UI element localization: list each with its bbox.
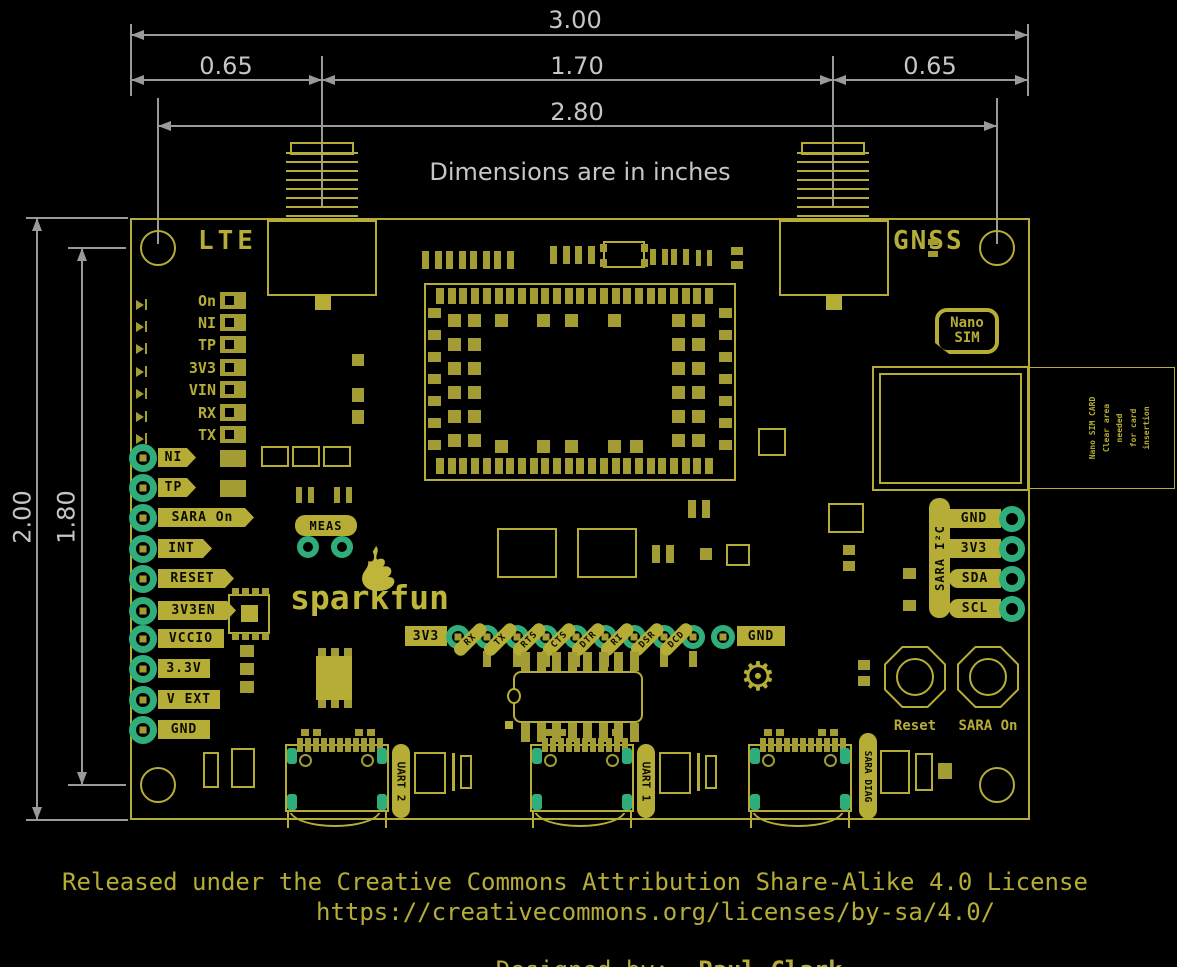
usb-tooth: [337, 738, 343, 752]
arrow-icon: [131, 75, 144, 85]
smd-part: [292, 446, 320, 467]
smd-part: [452, 753, 455, 791]
smd-part: [659, 752, 691, 794]
smd-part: [603, 241, 645, 268]
module-pad: [576, 288, 584, 304]
dim-line: [81, 248, 83, 785]
sara-module-footprint: [424, 283, 736, 481]
usb-pad: [367, 729, 375, 736]
extension-line: [26, 217, 128, 219]
module-pad: [588, 288, 596, 304]
smd-part: [683, 249, 689, 265]
led-label: TX: [152, 426, 216, 444]
usb-pad: [355, 729, 363, 736]
module-pad: [506, 288, 514, 304]
module-pad: [719, 440, 732, 450]
i2c-pad-sda: SDA: [949, 569, 1001, 588]
module-pad: [448, 362, 461, 375]
extension-line: [130, 24, 132, 96]
pad-label-3v3en: 3V3EN: [158, 601, 236, 620]
module-pad: [448, 386, 461, 399]
ic-pin: [552, 652, 561, 671]
usb-connector-body: [285, 744, 389, 812]
module-pad: [565, 314, 578, 327]
dim-hole-height-span-text: 1.80: [53, 490, 81, 543]
smd-part: [702, 500, 710, 518]
module-pad: [448, 338, 461, 351]
usb-tooth: [353, 738, 359, 752]
smd-part: [507, 251, 514, 269]
module-pad: [647, 458, 655, 474]
smd-part: [915, 753, 933, 791]
dim-width-total: 3.00: [515, 6, 635, 34]
usb-tooth: [824, 738, 830, 752]
dim-line: [131, 34, 1028, 36]
plated-pad: [129, 655, 157, 683]
smd-part: [459, 251, 466, 269]
module-pad: [518, 288, 526, 304]
usb-tooth: [760, 738, 766, 752]
module-pad: [541, 288, 549, 304]
sma-gnss-body: [779, 220, 889, 296]
sma-lte-threads: [286, 152, 358, 220]
module-pad: [719, 374, 732, 384]
sim-note: Nano SIM CARD Clear area needed for card…: [1082, 370, 1158, 486]
module-pad: [672, 410, 685, 423]
smd-part: [344, 700, 352, 708]
extension-line: [1027, 24, 1029, 96]
diode-icon: [136, 300, 144, 310]
smd-part: [232, 588, 239, 595]
smd-part: [240, 645, 254, 657]
module-pad: [495, 458, 503, 474]
sim-note-line: Clear area needed: [1100, 390, 1127, 466]
pad-label-vccio: VCCIO: [158, 629, 224, 648]
plated-pad: [129, 474, 157, 502]
smd-part: [928, 239, 938, 245]
smd-part: [331, 700, 339, 708]
meas-label: MEAS: [295, 515, 357, 536]
smd-part: [641, 244, 648, 252]
pcb-dimensional-drawing: 3.00 0.65 1.70 0.65 2.80 Dimensions are …: [0, 0, 1177, 967]
module-pad: [719, 352, 732, 362]
module-pad: [471, 458, 479, 474]
designed-by-line: Designed by: Paul Clark: [438, 928, 843, 967]
smd-part: [600, 244, 607, 252]
plated-pad: [129, 716, 157, 744]
smd-part: [262, 588, 269, 595]
i2c-pad-3v3: 3V3: [947, 539, 1001, 558]
module-pad: [705, 458, 713, 474]
module-pad: [471, 288, 479, 304]
ic-body: [513, 671, 643, 723]
module-pad: [692, 386, 705, 399]
smd-part: [252, 633, 259, 640]
smd-part: [242, 588, 249, 595]
dim-hole-span: 2.80: [517, 98, 637, 126]
smd-part: [346, 487, 352, 503]
smd-part: [261, 446, 289, 467]
plated-pad: [129, 625, 157, 653]
pad-label-int: INT: [158, 539, 212, 558]
sim-note-line: Nano SIM CARD: [1086, 390, 1100, 466]
mounting-hole: [979, 767, 1015, 803]
usb-tooth: [361, 738, 367, 752]
led-label: 3V3: [152, 359, 216, 377]
plated-pad: [999, 596, 1025, 622]
pin-stub: [689, 651, 697, 667]
module-pad: [658, 288, 666, 304]
ic-pin: [583, 723, 592, 742]
usb-label-uart1: UART 1: [637, 744, 655, 818]
smd-part: [600, 259, 607, 267]
sma-lte-pin: [315, 296, 331, 310]
header-label-3v3: 3V3: [405, 626, 447, 646]
module-pad: [565, 458, 573, 474]
smd-part: [241, 605, 258, 622]
module-pad: [495, 288, 503, 304]
smd-pad: [220, 381, 246, 398]
smd-part: [666, 545, 674, 563]
usb-tooth: [784, 738, 790, 752]
led-row: [136, 295, 147, 314]
module-pad: [692, 314, 705, 327]
diode-icon: [136, 412, 144, 422]
sim-note-line: for card insertion: [1127, 390, 1154, 466]
diode-icon: [145, 299, 147, 310]
smd-part: [231, 748, 255, 788]
module-pad: [670, 458, 678, 474]
usb-tooth: [768, 738, 774, 752]
arrow-icon: [131, 30, 144, 40]
ic-pin: [521, 652, 530, 671]
smd-part: [470, 251, 477, 269]
module-pad: [506, 458, 514, 474]
pad-label-sara-on: SARA On: [158, 508, 254, 527]
ic-pin: [552, 723, 561, 742]
lte-label: LTE: [198, 226, 257, 256]
module-pad: [672, 338, 685, 351]
module-pad: [428, 396, 441, 406]
smd-pad: [220, 426, 246, 443]
smd-part: [414, 752, 446, 794]
module-pad: [428, 374, 441, 384]
usb-connector-body: [530, 744, 634, 812]
module-pad: [576, 458, 584, 474]
usb-mount-pad: [532, 748, 542, 764]
module-pad: [692, 362, 705, 375]
plated-pad: [129, 535, 157, 563]
arrow-icon: [32, 218, 42, 231]
designer-name: Paul Clark: [698, 956, 843, 967]
smd-part: [843, 561, 855, 571]
ic-pin: [630, 652, 639, 671]
usb-tooth: [329, 738, 335, 752]
smd-part: [731, 247, 743, 255]
smd-part: [575, 246, 582, 264]
smd-part: [331, 648, 339, 656]
smd-part: [938, 763, 952, 779]
module-pad: [518, 458, 526, 474]
smd-part: [352, 388, 364, 402]
usb-tooth: [776, 738, 782, 752]
smd-part: [460, 755, 472, 789]
smd-part: [323, 446, 351, 467]
module-pad: [565, 440, 578, 453]
plated-pad: [999, 536, 1025, 562]
module-pad: [428, 330, 441, 340]
smd-part: [240, 663, 254, 675]
module-pad: [483, 288, 491, 304]
module-pad: [705, 288, 713, 304]
smd-part: [928, 251, 938, 257]
smd-part: [316, 656, 352, 700]
module-pad: [693, 288, 701, 304]
module-pad: [468, 410, 481, 423]
led-label: VIN: [152, 381, 216, 399]
diode-icon: [136, 344, 144, 354]
module-pad: [468, 386, 481, 399]
led-row: [136, 407, 147, 426]
module-pad: [428, 308, 441, 318]
pad-label-gnd: GND: [158, 720, 210, 739]
usb-overhang-arc: [289, 813, 385, 829]
diode-icon: [145, 388, 147, 399]
reset-button-label: Reset: [884, 718, 946, 734]
smd-part: [731, 261, 743, 269]
smd-part: [671, 249, 677, 265]
module-pad: [448, 410, 461, 423]
module-pad: [672, 434, 685, 447]
smd-part: [435, 251, 442, 269]
smd-part: [352, 354, 364, 366]
plated-pad: [129, 504, 157, 532]
diode-icon: [145, 343, 147, 354]
module-pad: [448, 434, 461, 447]
usb-overhang-ellipse: [289, 813, 381, 827]
module-pad: [623, 458, 631, 474]
smd-part: [707, 250, 712, 266]
i2c-pad-scl: SCL: [949, 599, 1001, 618]
usb-tooth: [832, 738, 838, 752]
plated-pad: [999, 506, 1025, 532]
usb-overhang-ellipse: [534, 813, 626, 827]
module-pad: [468, 434, 481, 447]
plated-pad: [129, 597, 157, 625]
led-label: RX: [152, 404, 216, 422]
module-pad: [428, 352, 441, 362]
smd-part: [705, 755, 717, 789]
ic-pin: [614, 723, 623, 742]
module-pad: [672, 386, 685, 399]
arrow-icon: [158, 121, 171, 131]
led-row: [136, 384, 147, 403]
led-row: [136, 317, 147, 336]
smd-part: [858, 676, 870, 686]
module-pad: [530, 458, 538, 474]
usb-tooth: [345, 738, 351, 752]
smd-part: [641, 259, 648, 267]
usb-mount-pad: [377, 748, 387, 764]
module-pad: [623, 288, 631, 304]
usb-label-sara-diag: SARA DIAG: [859, 733, 877, 819]
ic-pin: [521, 723, 530, 742]
usb-mount-pad: [377, 794, 387, 810]
module-pad: [495, 314, 508, 327]
pad-label-3v3: 3.3V: [158, 659, 210, 678]
smd-part: [588, 246, 595, 264]
smd-part: [232, 633, 239, 640]
module-pad: [692, 410, 705, 423]
smd-part: [652, 545, 660, 563]
smd-part: [252, 588, 259, 595]
smd-pad: [220, 359, 246, 376]
module-pad: [459, 288, 467, 304]
led-label: On: [152, 292, 216, 310]
module-pad: [672, 362, 685, 375]
usb-tooth: [369, 738, 375, 752]
diode-icon: [145, 366, 147, 377]
dim-hole-height-span: 1.80: [52, 482, 82, 552]
plated-pad: [129, 565, 157, 593]
module-pad: [448, 288, 456, 304]
smd-part: [843, 545, 855, 555]
smd-part: [903, 568, 916, 579]
smd-part: [296, 487, 302, 503]
usb-hole: [544, 754, 557, 767]
usb-hole: [606, 754, 619, 767]
module-pad: [428, 418, 441, 428]
module-pad: [428, 440, 441, 450]
sim-note-lines: Nano SIM CARD Clear area needed for card…: [1086, 390, 1154, 466]
smd-part: [262, 633, 269, 640]
usb-tooth: [792, 738, 798, 752]
module-pad: [719, 330, 732, 340]
module-pad: [692, 338, 705, 351]
smd-pad: [220, 404, 246, 421]
usb-shell-side: [848, 810, 850, 828]
usb-mount-pad: [840, 748, 850, 764]
usb-mount-pad: [622, 748, 632, 764]
usb-tooth: [808, 738, 814, 752]
smd-part: [483, 251, 490, 269]
pad-label-vext: V EXT: [158, 690, 220, 709]
smd-part: [497, 528, 557, 578]
dim-left-offset: 0.65: [166, 52, 286, 80]
led-row: [136, 362, 147, 381]
smd-part: [550, 246, 557, 264]
meas-pad: [331, 536, 353, 558]
usb-tooth: [305, 738, 311, 752]
usb-overhang-ellipse: [752, 813, 844, 827]
smd-part: [696, 250, 701, 266]
ic-pin: [568, 652, 577, 671]
module-pad: [635, 458, 643, 474]
smd-part: [662, 249, 668, 265]
smd-part: [240, 681, 254, 693]
designed-by-prefix: Designed by:: [496, 956, 698, 967]
diode-icon: [136, 434, 144, 444]
smd-part: [726, 544, 750, 566]
smd-part: [220, 480, 246, 497]
module-pad: [612, 288, 620, 304]
module-pad: [537, 314, 550, 327]
module-pad: [670, 288, 678, 304]
usb-hole: [762, 754, 775, 767]
smd-part: [697, 753, 700, 791]
usb-tooth: [321, 738, 327, 752]
usb-shell-side: [630, 810, 632, 828]
usb-mount-pad: [287, 794, 297, 810]
arrow-icon: [77, 248, 87, 261]
usb-mount-pad: [750, 748, 760, 764]
smd-part: [858, 660, 870, 670]
usb-label-uart1-text: UART 1: [640, 761, 653, 801]
usb-label-uart2: UART 2: [392, 744, 410, 818]
led-label: NI: [152, 314, 216, 332]
usb-label-sara-diag-text: SARA DIAG: [863, 750, 874, 801]
module-pad: [600, 288, 608, 304]
diode-icon: [145, 411, 147, 422]
module-pad: [530, 288, 538, 304]
nano-sim-badge: Nano SIM: [935, 308, 999, 354]
usb-pad: [301, 729, 309, 736]
smd-pad: [220, 314, 246, 331]
module-pad: [612, 458, 620, 474]
dim-height-total-text: 2.00: [9, 490, 37, 543]
module-pad: [682, 288, 690, 304]
module-pad: [682, 458, 690, 474]
module-pad: [647, 288, 655, 304]
module-pad: [459, 458, 467, 474]
smd-pad: [220, 292, 246, 309]
smd-part: [308, 487, 314, 503]
smd-part: [318, 648, 326, 656]
module-pad: [495, 440, 508, 453]
usb-tooth: [800, 738, 806, 752]
module-pad: [588, 458, 596, 474]
nano-sim-line1: Nano: [950, 316, 984, 331]
diode-icon: [145, 433, 147, 444]
smd-part: [422, 251, 429, 269]
arrow-icon: [833, 75, 846, 85]
diode-icon: [136, 389, 144, 399]
smd-part: [352, 410, 364, 424]
dim-line: [322, 79, 833, 81]
usb-hole: [361, 754, 374, 767]
arrow-icon: [322, 75, 335, 85]
usb-tooth: [816, 738, 822, 752]
module-pad: [565, 288, 573, 304]
smd-part: [758, 428, 786, 456]
ic-pin: [599, 723, 608, 742]
usb-mount-pad: [750, 794, 760, 810]
smd-part: [700, 548, 712, 560]
ic-pin: [630, 723, 639, 742]
meas-pad: [297, 536, 319, 558]
smd-part: [344, 648, 352, 656]
module-pad: [483, 458, 491, 474]
sara-on-button-cap: [969, 658, 1007, 696]
module-pad: [448, 314, 461, 327]
module-pad: [436, 288, 444, 304]
plated-pad: [711, 625, 735, 649]
extension-line: [68, 784, 126, 786]
license-line2: https://creativecommons.org/licenses/by-…: [316, 898, 995, 926]
usb-pad: [830, 729, 838, 736]
smd-part: [563, 246, 570, 264]
mounting-hole: [979, 230, 1015, 266]
